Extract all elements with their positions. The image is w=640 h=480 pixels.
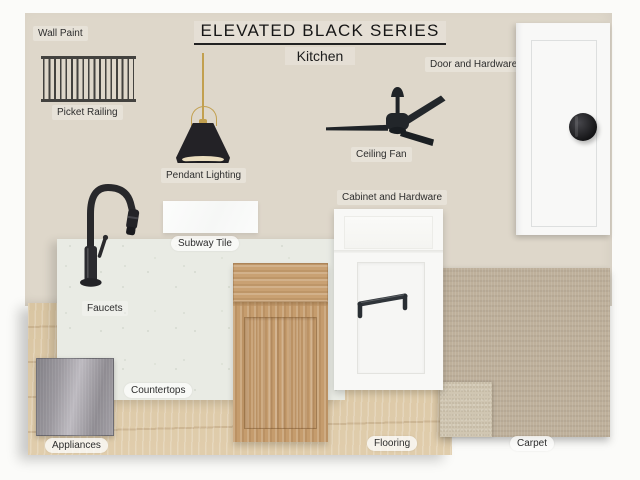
picket-railing-illustration bbox=[41, 56, 136, 102]
page-title: ELEVATED BLACK SERIES bbox=[194, 21, 445, 45]
subway-tile-swatch bbox=[163, 201, 258, 233]
door-knob bbox=[569, 113, 597, 141]
mood-board: ELEVATED BLACK SERIES Kitchen Wall Paint… bbox=[0, 0, 640, 480]
cabinet-groove bbox=[334, 250, 443, 253]
faucet-illustration bbox=[75, 180, 145, 290]
cabinet-handle bbox=[352, 288, 414, 322]
subway-tile-label: Subway Tile bbox=[171, 236, 239, 251]
pendant-lighting-label: Pendant Lighting bbox=[161, 168, 246, 183]
countertops-label: Countertops bbox=[124, 383, 192, 398]
carpet-label: Carpet bbox=[510, 436, 554, 451]
railing-bottom-rail bbox=[41, 99, 136, 102]
cabinet-and-hardware-label: Cabinet and Hardware bbox=[337, 190, 447, 205]
page-subtitle: Kitchen bbox=[285, 47, 356, 65]
appliance-swatch bbox=[36, 358, 114, 436]
cabinet-front-illustration bbox=[334, 209, 443, 390]
cabinet-door-divider bbox=[233, 302, 328, 306]
faucets-label: Faucets bbox=[82, 301, 128, 316]
railing-pickets bbox=[43, 59, 134, 99]
cabinet-door-wood-swatch bbox=[233, 263, 328, 442]
door-and-hardware-label: Door and Hardware bbox=[425, 57, 522, 72]
board-subheader: Kitchen bbox=[180, 47, 460, 66]
wall-paint-label: Wall Paint bbox=[33, 26, 88, 41]
carpet-swatch-small bbox=[440, 382, 492, 437]
door-illustration bbox=[516, 23, 610, 235]
board-header: ELEVATED BLACK SERIES bbox=[180, 21, 460, 45]
picket-railing-label: Picket Railing bbox=[52, 105, 123, 120]
cabinet-door-drawer-front bbox=[233, 263, 328, 302]
ceiling-fan-label: Ceiling Fan bbox=[351, 147, 412, 162]
flooring-label: Flooring bbox=[367, 436, 417, 451]
cabinet-door-inset-panel bbox=[244, 317, 317, 429]
ceiling-fan-illustration bbox=[318, 83, 450, 149]
pendant-rim-edge bbox=[178, 161, 228, 164]
appliances-label: Appliances bbox=[45, 438, 108, 453]
cabinet-drawer-front bbox=[344, 216, 433, 249]
